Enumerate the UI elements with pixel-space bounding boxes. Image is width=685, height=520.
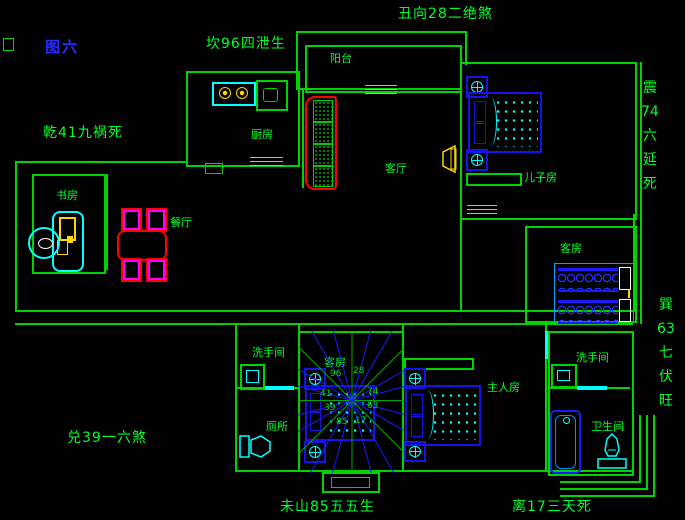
dining-chair: [146, 208, 167, 232]
wall: [302, 88, 304, 188]
vlabel-char: 旺: [659, 389, 673, 413]
compass-number: 39: [324, 404, 335, 413]
wall: [15, 323, 633, 325]
wall: [235, 323, 237, 472]
sofa-cushion: [313, 100, 333, 122]
sofa-cushion: [313, 122, 333, 144]
room-label-living: 客厅: [385, 160, 407, 176]
wall: [15, 161, 17, 312]
dining-chair: [121, 208, 142, 232]
room-label-washroom-west: 洗手间: [252, 344, 285, 360]
wall: [460, 214, 462, 312]
door-leaf: [205, 163, 223, 174]
wall: [465, 31, 467, 65]
label-east-zhen: 震 74 六 延 死: [641, 76, 659, 196]
room-label-dining: 餐厅: [170, 214, 192, 230]
compass-number: 63: [367, 402, 378, 411]
compass-number: 41: [320, 390, 331, 399]
vlabel-char: 六: [643, 124, 657, 148]
sofa-cushion: [313, 144, 333, 166]
compass-number: 28: [353, 367, 364, 376]
window: [545, 331, 548, 359]
wall: [640, 62, 642, 324]
dining-chair: [146, 258, 167, 282]
wall: [297, 31, 467, 33]
room-label-study: 书房: [56, 187, 78, 203]
vlabel-char: 63: [657, 317, 675, 341]
room-label-washroom-east: 洗手间: [576, 349, 609, 365]
sofa-cushion: [313, 166, 333, 187]
vlabel-char: 74: [641, 100, 659, 124]
sink-basin: [263, 88, 278, 102]
room-label-guest-east: 客房: [560, 240, 582, 256]
label-southeast-xun: 巽 63 七 伏 旺: [657, 293, 675, 413]
door-threshold: [577, 386, 607, 390]
pillow: [619, 267, 631, 290]
door-threshold: [265, 386, 294, 390]
stove: [212, 82, 256, 106]
stove-burner-icon: [219, 87, 231, 99]
sink-basin: [246, 370, 259, 383]
vlabel-char: 巽: [659, 293, 673, 317]
dining-chair: [121, 258, 142, 282]
guest-bed: [558, 300, 618, 324]
wall: [15, 161, 188, 163]
vlabel-char: 七: [659, 341, 673, 365]
vlabel-char: 震: [643, 76, 657, 100]
dining-table: [117, 230, 167, 261]
compass-number: 17: [355, 417, 366, 426]
vlabel-char: 死: [643, 172, 657, 196]
room-label-kitchen: 厨房: [251, 126, 273, 142]
wall: [106, 174, 108, 270]
label-west-qian: 乾41九祸死: [43, 122, 123, 142]
label-southwest-dui: 兑39一六煞: [67, 427, 147, 447]
floor-plan-canvas: 图六 坎96四泄生 丑向28二绝煞 乾41九祸死 兑39一六煞 未山85五五生 …: [0, 0, 685, 520]
chair-seat: [38, 238, 53, 249]
guest-beds: [554, 263, 634, 322]
toilet-icon: [595, 430, 631, 472]
window: [365, 85, 397, 94]
figure-label: 图六: [45, 36, 79, 57]
stove-burner-icon: [236, 87, 248, 99]
label-south-weishan: 未山85五五生: [280, 496, 375, 516]
window: [250, 157, 283, 166]
viewport-marker: [3, 38, 14, 51]
label-north-kan: 坎96四泄生: [206, 33, 286, 53]
pillow: [619, 299, 631, 322]
sink-basin: [557, 370, 570, 381]
mattress: [494, 98, 538, 147]
wall: [15, 310, 633, 312]
room-label-balcony: 阳台: [330, 50, 352, 66]
room-label-master: 主人房: [487, 379, 520, 395]
room-label-toilet: 厕所: [266, 418, 288, 434]
kitchen-sink: [256, 80, 288, 111]
sofa: [305, 96, 337, 190]
toilet-icon: [239, 433, 275, 461]
guest-room-center: 客房 96 28 74 63 41 39 85 17: [298, 331, 404, 473]
sons-bed: [468, 92, 542, 153]
window: [467, 205, 497, 214]
compass-number: 96: [330, 370, 341, 379]
label-top-chou: 丑向28二绝煞: [398, 3, 493, 23]
compass-number: 85: [336, 418, 347, 427]
vlabel-char: 伏: [659, 365, 673, 389]
compass-number: 74: [367, 388, 378, 397]
washbasin: [240, 364, 265, 390]
keyboard: [67, 236, 73, 243]
guest-bed: [558, 268, 618, 292]
master-bed: [405, 385, 481, 446]
label-south-li: 离17三天死: [512, 496, 592, 516]
lamp: [628, 289, 630, 298]
vlabel-char: 延: [643, 148, 657, 172]
mattress: [431, 391, 477, 440]
washbasin: [551, 364, 577, 388]
study-chair: [28, 227, 60, 259]
wall: [296, 31, 298, 90]
bathtub: [550, 410, 581, 474]
entry-step: [331, 477, 370, 488]
tv-icon: [436, 144, 458, 174]
room-label-sons-room: 儿子房: [524, 169, 557, 185]
bathtub-drain: [563, 417, 570, 424]
shelf: [466, 173, 522, 186]
